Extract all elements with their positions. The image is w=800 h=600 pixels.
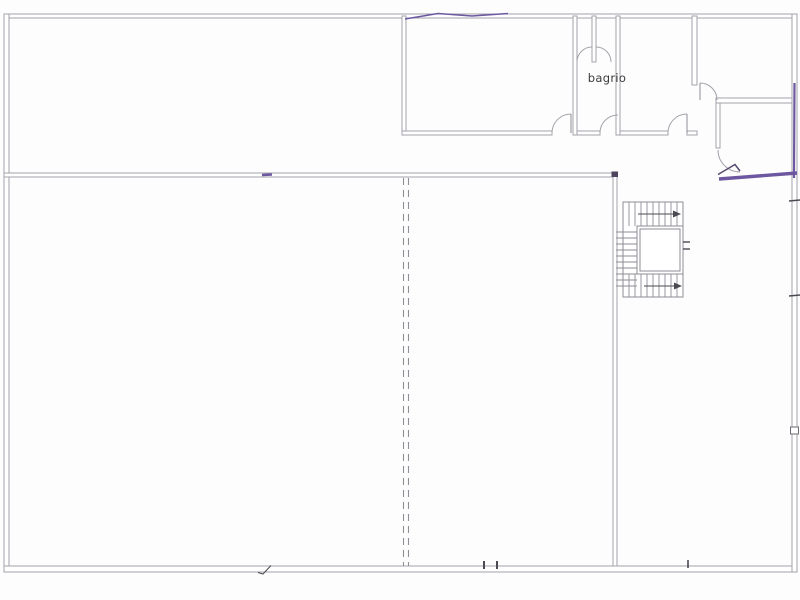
bathroom-stall-partition [592,16,596,62]
entry-stub-wall [716,103,720,148]
bathroom-door-arc [600,115,618,133]
partition-dashed-line [404,178,409,566]
corridor-door-arc-2 [668,114,687,133]
stair-core-inner [640,229,680,271]
floor-plan-page: bagrio [0,0,800,600]
bathroom-left-wall [573,16,577,135]
right-wall-window-marker [791,427,799,434]
wing-bottom-wall-b [577,131,600,135]
floor-plan-canvas: bagrio [0,0,800,600]
corridor-door-arc-1 [552,114,571,133]
right-wall-tick-upper [789,200,800,201]
room-label-bathroom: bagrio [588,71,626,85]
mid-wall-marker [262,175,272,176]
stall-door-arc-right [596,47,611,62]
entrance-threshold-marker [719,173,797,179]
door-swing-arcs [552,47,740,172]
mid-horizontal-wall [4,173,617,177]
wing-bottom-wall-c [620,131,668,135]
right-wall-tick-lower [789,295,800,296]
top-exterior-wall [4,14,797,18]
right-wall-marker [794,83,795,178]
bottom-exterior-wall [4,566,797,572]
left-exterior-wall [4,14,9,572]
entry-top-wall [716,98,792,103]
wing-room-divider-wall [692,16,697,85]
stall-door-arc-left [577,47,592,62]
interior-walls [4,173,617,566]
wing-room-door-arc [700,83,717,100]
wing-left-wall [402,16,406,133]
wing-bottom-wall-d [687,131,697,135]
stair-core [637,226,690,274]
wing-bottom-wall-a [402,131,552,135]
wall-joint-marker [612,172,619,178]
survey-marks [258,200,800,574]
staircase [616,202,690,297]
